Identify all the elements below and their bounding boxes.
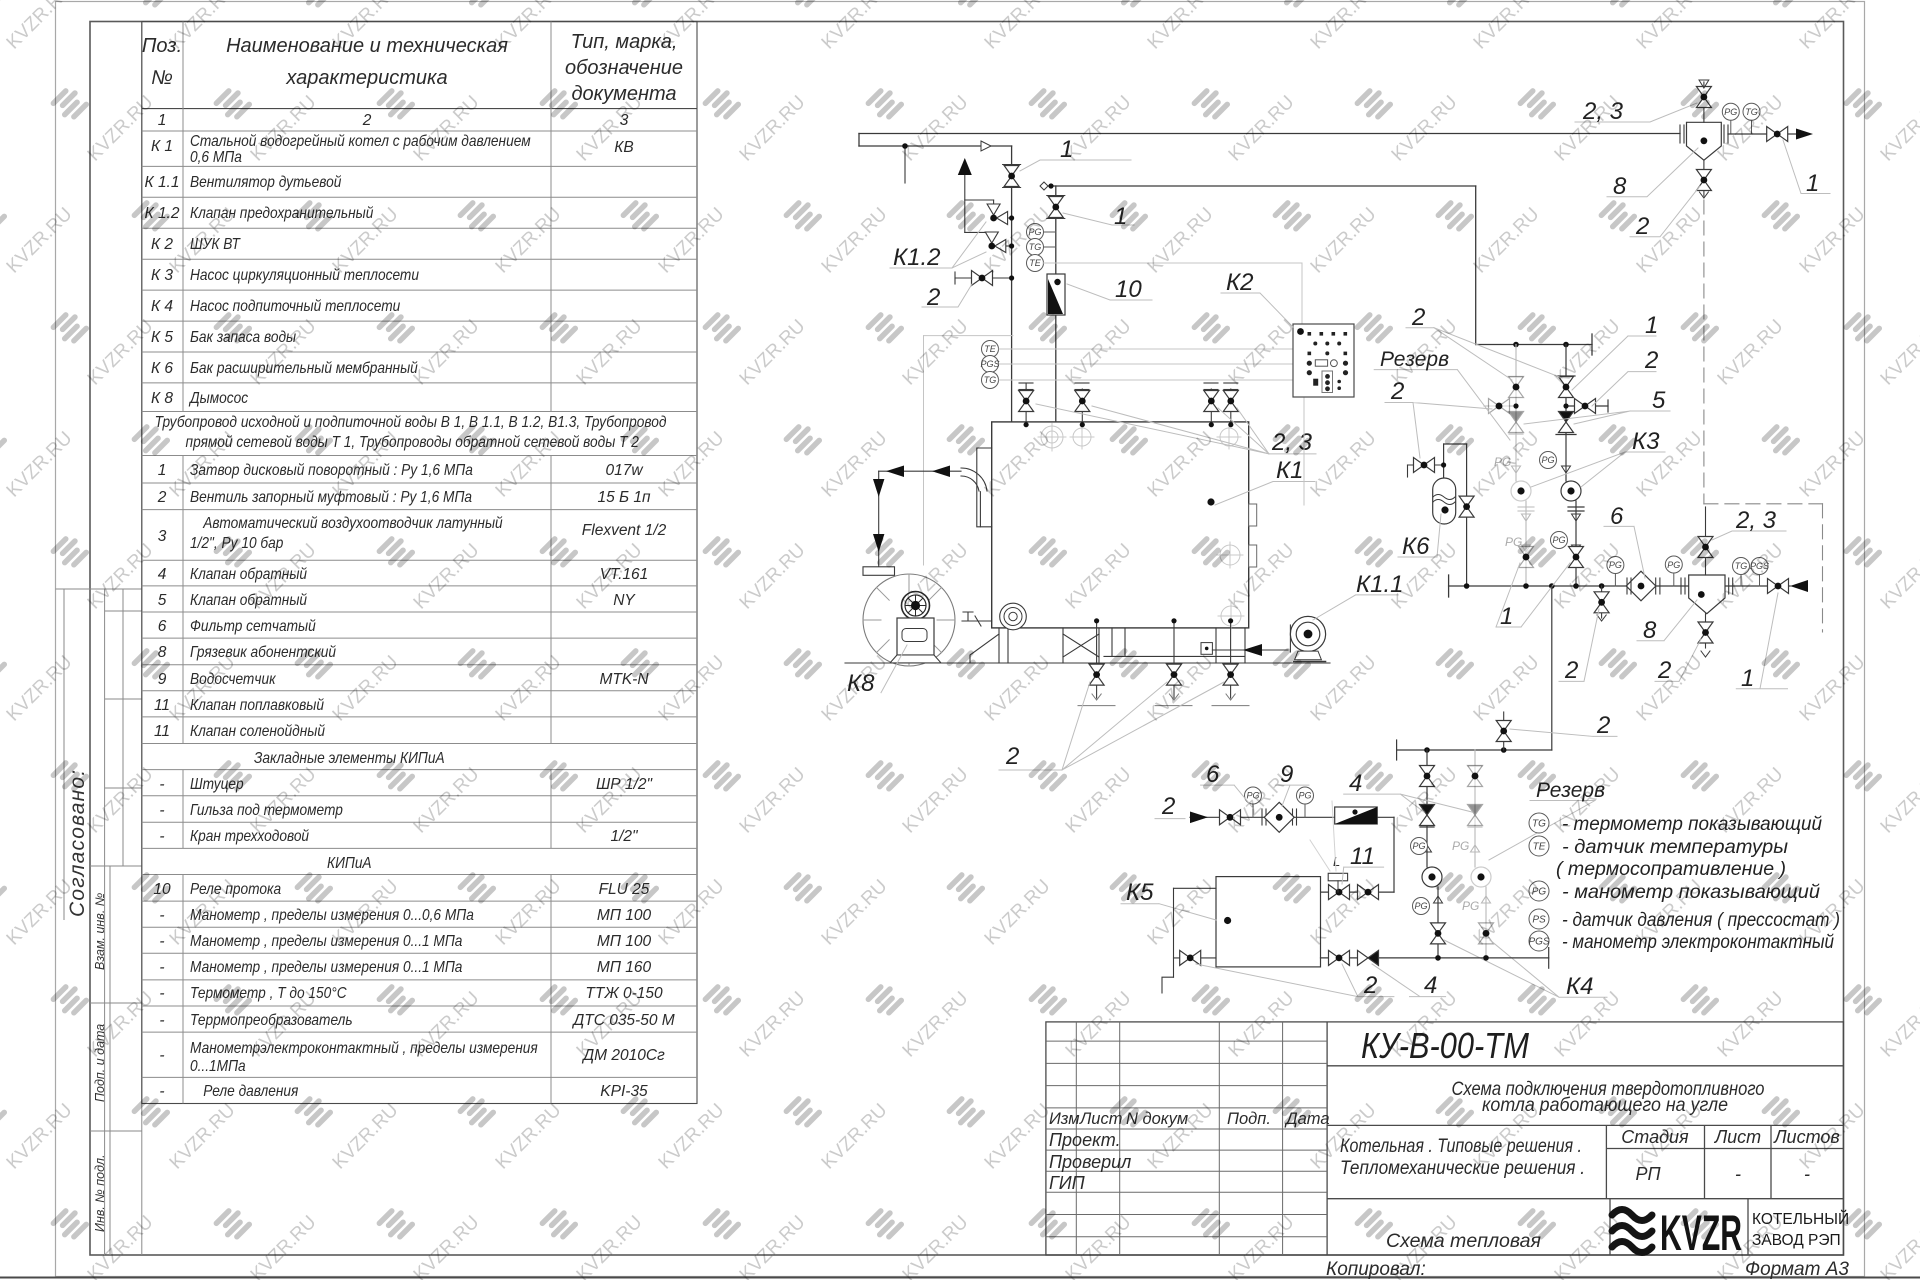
- svg-text:KVZR.RU: KVZR.RU: [736, 988, 810, 1062]
- svg-text:КИПиА: КИПиА: [327, 855, 372, 872]
- svg-text:КВ: КВ: [614, 139, 633, 156]
- svg-text:TE: TE: [1533, 842, 1546, 853]
- svg-text:1/2": 1/2": [610, 828, 639, 845]
- svg-text:характеристика: характеристика: [285, 67, 447, 89]
- svg-text:Манометр , пределы измерения: Манометр , пределы измерения 0...1 МПа: [190, 933, 462, 950]
- svg-text:KVZR.RU: KVZR.RU: [899, 1212, 973, 1280]
- svg-text:PG: PG: [1505, 535, 1522, 549]
- svg-text:0,6 МПа: 0,6 МПа: [190, 149, 242, 166]
- svg-text:KVZR.RU: KVZR.RU: [981, 0, 1055, 54]
- svg-text:Манометр , пределы измерения: Манометр , пределы измерения 0...0,6 МПа: [190, 907, 474, 924]
- svg-text:KVZR.RU: KVZR.RU: [899, 92, 973, 166]
- svg-text:KVZR.RU: KVZR.RU: [1470, 428, 1544, 502]
- svg-text:0...1МПа: 0...1МПа: [190, 1058, 246, 1075]
- svg-text:2: 2: [1005, 743, 1019, 770]
- svg-text:KVZR.RU: KVZR.RU: [84, 316, 158, 390]
- svg-text:PG: PG: [1552, 535, 1565, 545]
- svg-text:KVZR.RU: KVZR.RU: [492, 204, 566, 278]
- svg-text:PG: PG: [1298, 791, 1311, 801]
- svg-text:- датчик давления ( прессост: - датчик давления ( прессостат ): [1562, 910, 1840, 931]
- svg-text:KVZR.RU: KVZR.RU: [410, 316, 484, 390]
- svg-text:MTK-N: MTK-N: [599, 671, 649, 688]
- svg-text:KVZR.RU: KVZR.RU: [1470, 0, 1544, 54]
- svg-text:2: 2: [1596, 712, 1610, 739]
- svg-text:KVZR.RU: KVZR.RU: [166, 652, 240, 726]
- svg-text:TG: TG: [1532, 819, 1546, 830]
- svg-text:Термометр , Т до 150°С: Термометр , Т до 150°С: [190, 985, 347, 1002]
- svg-text:-: -: [159, 1083, 164, 1100]
- svg-text:Клапан поплавковый: Клапан поплавковый: [190, 697, 324, 714]
- svg-text:KVZR.RU: KVZR.RU: [1796, 652, 1870, 726]
- svg-text:К 3: К 3: [151, 267, 173, 284]
- svg-text:Вентиль запорный муфтовый : Р: Вентиль запорный муфтовый : Ру 1,6 МПа: [190, 489, 472, 506]
- svg-text:Лист: Лист: [1714, 1127, 1761, 1147]
- svg-text:2: 2: [1644, 347, 1658, 374]
- svg-text:К 6: К 6: [151, 360, 173, 377]
- svg-text:-: -: [159, 828, 164, 845]
- svg-text:Flexvent 1/2: Flexvent 1/2: [582, 522, 667, 539]
- svg-text:KVZR.RU: KVZR.RU: [1225, 988, 1299, 1062]
- svg-text:KVZR.RU: KVZR.RU: [981, 1100, 1055, 1174]
- svg-text:KVZR.RU: KVZR.RU: [573, 764, 647, 838]
- svg-text:Закладные элементы КИПиА: Закладные элементы КИПиА: [254, 750, 445, 767]
- svg-text:KVZR.RU: KVZR.RU: [1796, 0, 1870, 54]
- svg-text:1: 1: [1806, 170, 1819, 197]
- svg-text:Взам. инв. №: Взам. инв. №: [93, 892, 107, 970]
- svg-text:KVZR.RU: KVZR.RU: [573, 1212, 647, 1280]
- svg-text:KVZR.RU: KVZR.RU: [1144, 876, 1218, 950]
- svg-text:Реле давления: Реле давления: [203, 1083, 298, 1100]
- svg-text:-: -: [159, 1012, 164, 1029]
- svg-text:KVZR.RU: KVZR.RU: [1388, 92, 1462, 166]
- svg-text:KVZR.RU: KVZR.RU: [492, 1100, 566, 1174]
- svg-text:5: 5: [158, 592, 167, 609]
- svg-text:Вентилятор дутьевой: Вентилятор дутьевой: [190, 174, 341, 191]
- svg-text:К2: К2: [1226, 269, 1254, 296]
- svg-text:8: 8: [158, 644, 167, 661]
- svg-text:4: 4: [158, 566, 167, 583]
- svg-text:KVZR.RU: KVZR.RU: [736, 764, 810, 838]
- svg-text:KVZR.RU: KVZR.RU: [492, 876, 566, 950]
- svg-text:1: 1: [1741, 665, 1754, 692]
- svg-text:2: 2: [926, 284, 940, 311]
- svg-text:Лист: Лист: [1079, 1110, 1122, 1128]
- svg-text:2: 2: [1411, 304, 1425, 331]
- svg-text:Манометрэлектроконтактный , п: Манометрэлектроконтактный , пределы изме…: [190, 1040, 538, 1057]
- svg-text:TG: TG: [984, 375, 997, 385]
- svg-text:KVZR.RU: KVZR.RU: [655, 428, 729, 502]
- svg-text:Котельная . Типовые решения .: Котельная . Типовые решения .: [1340, 1136, 1582, 1157]
- svg-text:KVZR.RU: KVZR.RU: [736, 540, 810, 614]
- svg-text:KVZR.RU: KVZR.RU: [1225, 92, 1299, 166]
- svg-text:KVZR.RU: KVZR.RU: [736, 92, 810, 166]
- svg-text:TE: TE: [1029, 258, 1041, 268]
- svg-text:NY: NY: [613, 592, 636, 609]
- svg-text:2: 2: [362, 112, 372, 129]
- svg-text:KVZR.RU: KVZR.RU: [410, 540, 484, 614]
- svg-text:Дымосос: Дымосос: [188, 390, 249, 407]
- svg-text:К6: К6: [1402, 533, 1430, 560]
- svg-text:KVZR.RU: KVZR.RU: [1470, 204, 1544, 278]
- svg-text:К 2: К 2: [151, 236, 173, 253]
- svg-text:МП 100: МП 100: [597, 907, 652, 924]
- svg-text:К 8: К 8: [151, 390, 173, 407]
- svg-text:PS: PS: [1532, 915, 1546, 926]
- svg-text:KVZR.RU: KVZR.RU: [1062, 1212, 1136, 1280]
- svg-text:KVZR.RU: KVZR.RU: [84, 92, 158, 166]
- svg-text:2, 3: 2, 3: [1735, 507, 1777, 534]
- svg-text:KVZR.RU: KVZR.RU: [1225, 1212, 1299, 1280]
- svg-text:11: 11: [1350, 843, 1375, 870]
- svg-text:ГИП: ГИП: [1049, 1173, 1086, 1193]
- svg-text:Автоматический воздухоотводчи: Автоматический воздухоотводчик латунный: [202, 515, 502, 532]
- svg-text:( термосопративление ): ( термосопративление ): [1556, 859, 1786, 880]
- svg-text:Кран трехходовой: Кран трехходовой: [190, 828, 309, 845]
- svg-text:KVZR.RU: KVZR.RU: [1796, 204, 1870, 278]
- svg-text:KVZR.RU: KVZR.RU: [84, 764, 158, 838]
- svg-text:№: №: [151, 67, 173, 89]
- svg-text:TE: TE: [984, 344, 996, 354]
- svg-text:PGS: PGS: [980, 359, 999, 369]
- svg-text:KVZR.RU: KVZR.RU: [3, 428, 77, 502]
- svg-text:-: -: [159, 802, 164, 819]
- svg-text:KVZR.RU: KVZR.RU: [1877, 540, 1920, 614]
- svg-text:1: 1: [158, 462, 167, 479]
- svg-text:KVZR.RU: KVZR.RU: [1062, 92, 1136, 166]
- svg-text:KVZR.RU: KVZR.RU: [655, 1100, 729, 1174]
- svg-text:KVZR.RU: KVZR.RU: [818, 0, 892, 54]
- svg-text:KVZR.RU: KVZR.RU: [655, 876, 729, 950]
- svg-text:2: 2: [1161, 793, 1175, 820]
- svg-text:1: 1: [1645, 312, 1658, 339]
- svg-text:Насос подпиточный теплосети: Насос подпиточный теплосети: [190, 298, 400, 315]
- svg-text:KVZR.RU: KVZR.RU: [899, 988, 973, 1062]
- svg-text:- манометр электроконтактный: - манометр электроконтактный: [1562, 932, 1834, 953]
- svg-text:KVZR.RU: KVZR.RU: [410, 92, 484, 166]
- svg-text:KVZR.RU: KVZR.RU: [1225, 316, 1299, 390]
- svg-text:Проверил: Проверил: [1049, 1152, 1131, 1172]
- svg-text:К1: К1: [1276, 457, 1304, 484]
- svg-text:KVZR.RU: KVZR.RU: [1062, 316, 1136, 390]
- svg-text:KVZR.RU: KVZR.RU: [247, 1212, 321, 1280]
- svg-text:KVZR.RU: KVZR.RU: [329, 652, 403, 726]
- svg-text:KVZR.RU: KVZR.RU: [736, 316, 810, 390]
- svg-text:017w: 017w: [605, 462, 644, 479]
- svg-text:KVZR.RU: KVZR.RU: [736, 1212, 810, 1280]
- svg-text:KVZR.RU: KVZR.RU: [166, 1100, 240, 1174]
- svg-text:обозначение: обозначение: [565, 57, 683, 79]
- svg-text:- термометр показывающий: - термометр показывающий: [1562, 814, 1822, 835]
- svg-text:11: 11: [154, 723, 170, 740]
- svg-text:PG: PG: [1462, 899, 1479, 913]
- svg-text:KVZR.RU: KVZR.RU: [818, 1100, 892, 1174]
- svg-text:Наименование и техническая: Наименование и техническая: [226, 35, 508, 57]
- svg-text:KVZR.RU: KVZR.RU: [1551, 540, 1625, 614]
- svg-text:KVZR.RU: KVZR.RU: [410, 764, 484, 838]
- svg-text:PG: PG: [1724, 107, 1737, 117]
- svg-text:KVZR.RU: KVZR.RU: [981, 876, 1055, 950]
- svg-text:Стальной водогрейный котел с р: Стальной водогрейный котел с рабочим дав…: [190, 133, 531, 150]
- svg-text:Подп.: Подп.: [1227, 1110, 1271, 1128]
- svg-text:PGS: PGS: [1528, 937, 1549, 948]
- svg-text:- датчик температуры: - датчик температуры: [1562, 837, 1788, 858]
- svg-text:KVZR.RU: KVZR.RU: [1714, 316, 1788, 390]
- svg-text:-: -: [159, 933, 164, 950]
- svg-text:-: -: [159, 776, 164, 793]
- svg-text:KVZR.RU: KVZR.RU: [3, 652, 77, 726]
- svg-text:KVZR.RU: KVZR.RU: [3, 0, 77, 54]
- svg-text:2: 2: [1635, 213, 1649, 240]
- svg-text:15 Б 1п: 15 Б 1п: [597, 489, 651, 506]
- svg-text:Манометр , пределы измерения: Манометр , пределы измерения 0...1 МПа: [190, 959, 462, 976]
- svg-text:К4: К4: [1566, 973, 1594, 1000]
- svg-text:К 1: К 1: [151, 138, 173, 155]
- svg-text:10: 10: [1115, 276, 1142, 303]
- svg-text:KVZR.RU: KVZR.RU: [84, 540, 158, 614]
- svg-text:Бак расширительный мембранный: Бак расширительный мембранный: [190, 360, 418, 377]
- svg-text:TG: TG: [1029, 242, 1042, 252]
- svg-text:2: 2: [1564, 657, 1578, 684]
- svg-text:KVZR.RU: KVZR.RU: [655, 652, 729, 726]
- svg-text:KVZR.RU: KVZR.RU: [247, 316, 321, 390]
- svg-text:-: -: [159, 1047, 164, 1064]
- svg-text:KVZR.RU: KVZR.RU: [1144, 0, 1218, 54]
- svg-text:КУ-В-00-ТМ: КУ-В-00-ТМ: [1361, 1025, 1529, 1066]
- svg-text:К 4: К 4: [151, 298, 173, 315]
- svg-text:KVZR.RU: KVZR.RU: [1225, 764, 1299, 838]
- svg-text:Проект.: Проект.: [1049, 1130, 1121, 1150]
- svg-text:L: L: [1333, 854, 1340, 869]
- svg-text:KVZR.RU: KVZR.RU: [247, 764, 321, 838]
- svg-text:прямой сетевой воды Т 1, Труб: прямой сетевой воды Т 1, Трубопроводы об…: [186, 434, 639, 451]
- svg-text:Трубопровод исходной и подпито: Трубопровод исходной и подпиточной воды …: [155, 414, 667, 431]
- svg-text:Инв. № подл.: Инв. № подл.: [93, 1154, 107, 1232]
- svg-text:МП 160: МП 160: [597, 959, 652, 976]
- svg-text:Изм: Изм: [1049, 1110, 1080, 1128]
- svg-text:PG: PG: [1667, 560, 1680, 570]
- svg-text:Формат А3: Формат А3: [1745, 1259, 1849, 1280]
- svg-text:KVZR.RU: KVZR.RU: [655, 0, 729, 54]
- svg-text:-: -: [159, 985, 164, 1002]
- svg-text:KPI-35: KPI-35: [600, 1083, 648, 1100]
- svg-text:KVZR.RU: KVZR.RU: [1144, 204, 1218, 278]
- svg-text:KVZR.RU: KVZR.RU: [247, 92, 321, 166]
- svg-text:2: 2: [157, 489, 167, 506]
- svg-text:-: -: [159, 959, 164, 976]
- svg-text:МП 100: МП 100: [597, 933, 652, 950]
- svg-text:KVZR.RU: KVZR.RU: [899, 316, 973, 390]
- svg-text:KVZR.RU: KVZR.RU: [1470, 652, 1544, 726]
- svg-text:KVZR.RU: KVZR.RU: [1796, 428, 1870, 502]
- svg-text:KVZR.RU: KVZR.RU: [1062, 988, 1136, 1062]
- svg-text:5: 5: [1652, 387, 1666, 414]
- svg-text:KVZR.RU: KVZR.RU: [655, 204, 729, 278]
- svg-text:KVZR.RU: KVZR.RU: [1877, 764, 1920, 838]
- svg-text:KVZR.RU: KVZR.RU: [329, 1100, 403, 1174]
- svg-text:KVZR.RU: KVZR.RU: [899, 764, 973, 838]
- svg-text:6: 6: [158, 618, 167, 635]
- svg-text:PG: PG: [1541, 455, 1554, 465]
- svg-text:PG: PG: [1414, 901, 1427, 911]
- svg-text:KVZR.RU: KVZR.RU: [1307, 204, 1381, 278]
- svg-text:Тепломеханические решения .: Тепломеханические решения .: [1340, 1158, 1585, 1179]
- svg-text:KVZR.RU: KVZR.RU: [3, 1100, 77, 1174]
- svg-text:8: 8: [1643, 617, 1657, 644]
- svg-text:8: 8: [1613, 173, 1627, 200]
- svg-text:PG: PG: [1412, 841, 1425, 851]
- svg-text:KVZR.RU: KVZR.RU: [1877, 92, 1920, 166]
- svg-text:Насос циркуляционный теплосети: Насос циркуляционный теплосети: [190, 267, 419, 284]
- svg-text:4: 4: [1424, 972, 1437, 999]
- svg-text:KVZR.RU: KVZR.RU: [573, 316, 647, 390]
- svg-text:KVZR.RU: KVZR.RU: [818, 204, 892, 278]
- svg-text:KVZR.RU: KVZR.RU: [3, 204, 77, 278]
- svg-text:К 1.1: К 1.1: [145, 174, 180, 191]
- svg-text:KVZR.RU: KVZR.RU: [1877, 1212, 1920, 1280]
- svg-text:KVZR.RU: KVZR.RU: [1551, 316, 1625, 390]
- svg-text:-: -: [159, 907, 164, 924]
- svg-text:KVZR.RU: KVZR.RU: [410, 1212, 484, 1280]
- svg-text:KVZR.RU: KVZR.RU: [1307, 0, 1381, 54]
- svg-text:К1.2: К1.2: [893, 244, 941, 271]
- svg-text:6: 6: [1610, 503, 1624, 530]
- svg-text:Клапан соленойдный: Клапан соленойдный: [190, 723, 325, 740]
- svg-text:1: 1: [1500, 603, 1513, 630]
- svg-text:KVZR.RU: KVZR.RU: [1877, 988, 1920, 1062]
- svg-text:1: 1: [158, 112, 167, 129]
- svg-text:KVZR.RU: KVZR.RU: [492, 652, 566, 726]
- svg-text:KVZR.RU: KVZR.RU: [492, 0, 566, 54]
- svg-text:PG: PG: [1452, 839, 1469, 853]
- svg-text:Затвор дисковый поворотный :: Затвор дисковый поворотный : Ру 1,6 МПа: [190, 462, 473, 479]
- svg-text:KVZR.RU: KVZR.RU: [1877, 316, 1920, 390]
- svg-text:KVZR.RU: KVZR.RU: [1307, 428, 1381, 502]
- svg-text:KVZR.RU: KVZR.RU: [1714, 988, 1788, 1062]
- svg-text:KVZR.RU: KVZR.RU: [1062, 764, 1136, 838]
- svg-text:-: -: [1735, 1164, 1741, 1184]
- svg-text:Фильтр сетчатый: Фильтр сетчатый: [190, 618, 316, 635]
- svg-text:KVZR.RU: KVZR.RU: [818, 876, 892, 950]
- svg-text:KVZR.RU: KVZR.RU: [1633, 0, 1707, 54]
- svg-text:3: 3: [158, 528, 167, 545]
